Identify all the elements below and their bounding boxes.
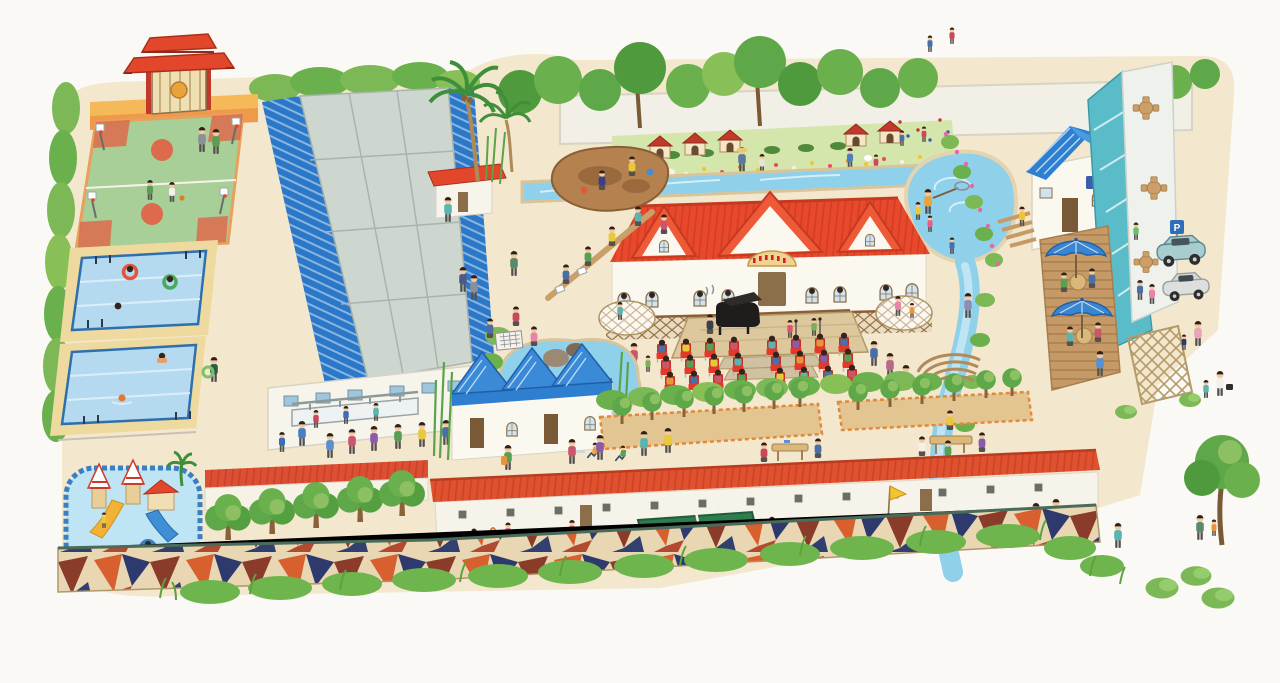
- table-guest: [979, 432, 986, 452]
- gazebo-balcony-left: [599, 301, 655, 335]
- cafe-guest: [1095, 322, 1102, 342]
- table-guest: [947, 410, 954, 430]
- cottage-door: [544, 414, 558, 444]
- table-guest: [919, 436, 926, 456]
- board-game-player: [531, 326, 538, 346]
- cafe-deck: [1040, 226, 1120, 390]
- hall-doorway: [758, 272, 786, 306]
- toddler-in-sand: [599, 170, 606, 190]
- classroom-door: [580, 505, 592, 527]
- board-game-player: [487, 318, 494, 338]
- shrub: [1115, 405, 1137, 419]
- cafe-guest: [1089, 268, 1096, 288]
- table-guest: [761, 442, 768, 462]
- board-game-player: [513, 306, 520, 326]
- rabbit: [864, 155, 872, 161]
- bottom-right-bush: [1202, 588, 1235, 609]
- swimming-pools: [50, 240, 218, 440]
- cafe-guest: [1067, 326, 1074, 346]
- basketball-courts: [76, 114, 243, 250]
- swimmer: [115, 303, 122, 310]
- bottom-right-bush: [1181, 566, 1212, 586]
- cafe-guest: [1061, 272, 1068, 292]
- sketching-child: [563, 264, 570, 284]
- sketching-child: [585, 246, 592, 266]
- adult-on-stool: [661, 214, 668, 234]
- sketching-child: [609, 226, 616, 246]
- parking-sign-label: P: [1174, 223, 1181, 234]
- sandpit: [552, 147, 668, 211]
- bottom-right-bush: [1146, 578, 1179, 599]
- campus-map-illustration: Hand-painted bird's-eye illustrated map …: [0, 0, 1280, 683]
- sand-bucket: [581, 187, 588, 194]
- pianist: [707, 314, 714, 334]
- sketching-child: [635, 206, 642, 226]
- classroom-door: [920, 489, 932, 511]
- ping-pong-ball: [712, 504, 716, 508]
- illustration-canvas: Hand-painted bird's-eye illustrated map …: [0, 0, 1280, 683]
- cottage-window: [585, 417, 596, 431]
- toddler-in-sand: [629, 156, 636, 176]
- cottage-door: [470, 418, 484, 448]
- beach-ball: [647, 169, 654, 176]
- shrub: [1179, 393, 1201, 407]
- gazebo-balcony-right: [876, 296, 932, 330]
- table-guest: [815, 438, 822, 458]
- basketball: [179, 195, 184, 200]
- cottage-window: [507, 423, 518, 437]
